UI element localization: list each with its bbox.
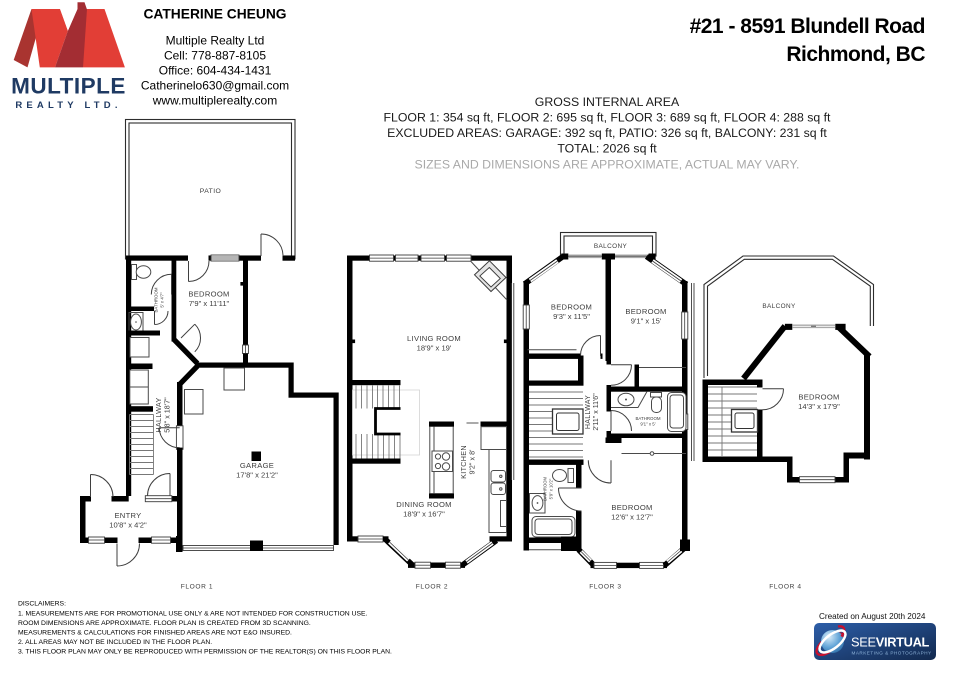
svg-text:18'9" x 16'7": 18'9" x 16'7" bbox=[403, 510, 445, 519]
svg-text:SEEVIRTUAL: SEEVIRTUAL bbox=[851, 635, 930, 650]
svg-text:Catherinelo630@gmail.com: Catherinelo630@gmail.com bbox=[141, 79, 289, 93]
svg-text:BATHROOM: BATHROOM bbox=[635, 416, 660, 421]
svg-text:BALCONY: BALCONY bbox=[762, 303, 796, 310]
svg-text:HALLWAY: HALLWAY bbox=[585, 395, 592, 429]
svg-text:5'9" x 10'2": 5'9" x 10'2" bbox=[549, 478, 554, 499]
svg-text:Richmond, BC: Richmond, BC bbox=[786, 43, 925, 66]
svg-text:ENTRY: ENTRY bbox=[114, 511, 141, 520]
svg-text:EXCLUDED AREAS: GARAGE: 392 sq: EXCLUDED AREAS: GARAGE: 392 sq ft, PATIO… bbox=[387, 126, 827, 140]
svg-text:FLOOR 3: FLOOR 3 bbox=[589, 584, 621, 591]
svg-text:TOTAL: 2026 sq ft: TOTAL: 2026 sq ft bbox=[557, 142, 657, 156]
svg-text:17'8" x 21'2": 17'8" x 21'2" bbox=[236, 471, 278, 480]
svg-text:18'9" x 19': 18'9" x 19' bbox=[417, 344, 452, 353]
svg-text:ROOM DIMENSIONS ARE APPROXIMAT: ROOM DIMENSIONS ARE APPROXIMATE. FLOOR P… bbox=[18, 620, 311, 627]
svg-text:9'1" x 5': 9'1" x 5' bbox=[640, 422, 655, 427]
svg-text:BATHROOM: BATHROOM bbox=[154, 287, 159, 312]
svg-text:PATIO: PATIO bbox=[200, 188, 221, 195]
svg-text:SIZES AND DIMENSIONS ARE APPRO: SIZES AND DIMENSIONS ARE APPROXIMATE, AC… bbox=[415, 158, 800, 172]
svg-text:DISCLAIMERS:: DISCLAIMERS: bbox=[18, 601, 66, 608]
svg-text:9'3" x 11'5": 9'3" x 11'5" bbox=[553, 312, 590, 321]
svg-text:BEDROOM: BEDROOM bbox=[188, 290, 229, 299]
svg-text:10'8" x 4'2": 10'8" x 4'2" bbox=[109, 521, 147, 530]
svg-text:GARAGE: GARAGE bbox=[240, 461, 274, 470]
svg-text:FLOOR 1: 354 sq ft, FLOOR 2: 6: FLOOR 1: 354 sq ft, FLOOR 2: 695 sq ft, … bbox=[384, 111, 832, 125]
svg-text:MULTIPLE: MULTIPLE bbox=[11, 74, 126, 99]
svg-text:3. THIS FLOOR PLAN MAY ONLY BE: 3. THIS FLOOR PLAN MAY ONLY BE REPRODUCE… bbox=[18, 649, 392, 656]
svg-text:9'2" x 8': 9'2" x 8' bbox=[468, 449, 477, 475]
svg-text:GROSS INTERNAL AREA: GROSS INTERNAL AREA bbox=[535, 95, 680, 109]
svg-text:LIVING ROOM: LIVING ROOM bbox=[407, 334, 461, 343]
svg-text:Office: 604-434-1431: Office: 604-434-1431 bbox=[159, 64, 272, 78]
svg-text:BEDROOM: BEDROOM bbox=[625, 307, 666, 316]
svg-text:FLOOR 1: FLOOR 1 bbox=[181, 584, 213, 591]
svg-text:12'6" x 12'7": 12'6" x 12'7" bbox=[611, 513, 653, 522]
svg-text:FLOOR 2: FLOOR 2 bbox=[416, 584, 448, 591]
svg-text:7'9" x 11'11": 7'9" x 11'11" bbox=[189, 299, 230, 308]
svg-text:5' x 4'7": 5' x 4'7" bbox=[160, 292, 165, 308]
svg-text:Cell: 778-887-8105: Cell: 778-887-8105 bbox=[164, 49, 266, 63]
svg-text:2'11" x 11'6": 2'11" x 11'6" bbox=[593, 393, 600, 431]
svg-text:9'1" x 15': 9'1" x 15' bbox=[631, 317, 662, 326]
svg-text:BEDROOM: BEDROOM bbox=[551, 303, 592, 312]
svg-text:Multiple Realty Ltd: Multiple Realty Ltd bbox=[166, 34, 265, 48]
svg-text:14'3" x 17'9": 14'3" x 17'9" bbox=[798, 402, 840, 411]
svg-text:BEDROOM: BEDROOM bbox=[611, 503, 652, 512]
svg-text:MEASUREMENTS & CALCULATIONS FO: MEASUREMENTS & CALCULATIONS FOR FINISHED… bbox=[18, 630, 292, 637]
svg-text:CATHERINE CHEUNG: CATHERINE CHEUNG bbox=[143, 7, 286, 22]
svg-text:#21 - 8591 Blundell Road: #21 - 8591 Blundell Road bbox=[690, 15, 925, 38]
svg-text:FLOOR 4: FLOOR 4 bbox=[769, 584, 801, 591]
svg-text:DINING ROOM: DINING ROOM bbox=[396, 500, 452, 509]
svg-text:BEDROOM: BEDROOM bbox=[798, 393, 839, 402]
svg-text:www.multiplerealty.com: www.multiplerealty.com bbox=[152, 94, 277, 108]
svg-text:Created on August 20th 2024: Created on August 20th 2024 bbox=[819, 612, 926, 621]
svg-text:1. MEASUREMENTS ARE FOR PROMOT: 1. MEASUREMENTS ARE FOR PROMOTIONAL USE … bbox=[18, 611, 368, 618]
svg-text:BALCONY: BALCONY bbox=[594, 243, 628, 250]
svg-text:2. ALL AREAS MAY NOT BE INCLUD: 2. ALL AREAS MAY NOT BE INCLUDED IN THE … bbox=[18, 639, 212, 646]
svg-text:REALTY LTD.: REALTY LTD. bbox=[15, 100, 121, 111]
svg-text:BATHROOM: BATHROOM bbox=[543, 477, 548, 501]
svg-text:MARKETING & PHOTOGRAPHY: MARKETING & PHOTOGRAPHY bbox=[852, 651, 932, 656]
